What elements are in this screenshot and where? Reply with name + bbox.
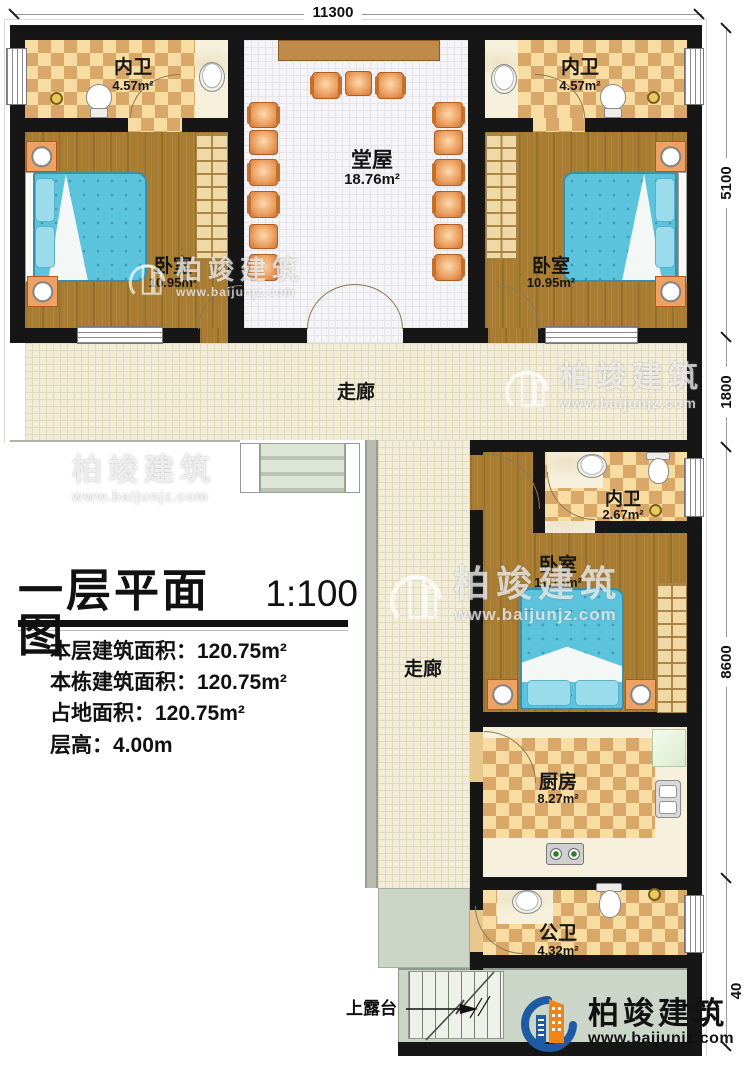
corridor-rail <box>365 440 378 888</box>
stat-value: 120.75m² <box>155 702 245 725</box>
bath4-drain <box>648 888 661 901</box>
roof-ledge-left <box>4 19 5 443</box>
bed1-nightstand <box>27 276 58 307</box>
hall-chair <box>434 102 463 128</box>
terrace-upper-landing <box>378 888 470 968</box>
corridor-v-label: 走廊 <box>392 660 454 680</box>
stat-building-area: 本栋建筑面积：120.75m² <box>50 672 287 693</box>
bed3-pillow <box>527 680 571 706</box>
hall-door-gap <box>307 328 403 343</box>
bed2-label: 卧室 <box>520 257 582 277</box>
wall-lower-left-vert <box>470 440 483 970</box>
stat-floor-height: 层高：4.00m <box>50 735 173 756</box>
bath3-door-gap <box>545 521 595 533</box>
stat-label: 层高： <box>50 734 113 757</box>
bed2-door-gap <box>488 328 538 343</box>
hall-area: 18.76m² <box>330 172 414 187</box>
bed1-area: 10.95m² <box>138 276 208 289</box>
wall-south-c <box>228 328 307 343</box>
wall-south-b <box>163 328 200 343</box>
entrance-jamb-right <box>345 443 360 493</box>
bed3-area: 11.13m² <box>519 576 597 589</box>
hall-label: 堂屋 <box>330 150 414 172</box>
hall-chair <box>249 191 278 218</box>
bath3-area: 2.67m² <box>590 508 656 521</box>
hall-chair <box>249 159 278 186</box>
corridor-h-label: 走廊 <box>325 383 387 403</box>
bed1-pillow <box>35 178 55 222</box>
entrance-jamb-left <box>240 443 260 493</box>
dim-right-1800: 1800 <box>718 367 736 417</box>
kitchen-door-gap <box>470 732 483 782</box>
bed3-label: 卧室 <box>527 556 589 576</box>
bed2-headboard <box>678 172 687 282</box>
kitchen-counter <box>652 729 686 767</box>
corridor-edge-line <box>10 440 240 442</box>
wall-south-f <box>638 328 702 343</box>
wall-mid-right-vert <box>468 25 485 328</box>
bath2-door-gap <box>533 118 585 132</box>
wall-mid-left-vert <box>228 25 244 328</box>
bath1-door-gap <box>128 118 182 132</box>
bed2-nightstand <box>655 141 686 172</box>
stat-value: 4.00m <box>113 734 173 757</box>
bed1-door-gap <box>200 328 230 343</box>
hall-chair <box>434 191 463 218</box>
terrace-label: 上露台 <box>346 994 406 1019</box>
bed3-nightstand <box>487 679 518 710</box>
watermark: 柏竣建筑 www.baijunjz.com <box>12 452 216 510</box>
stat-value: 120.75m² <box>197 640 287 663</box>
hall-sideboard <box>278 40 440 61</box>
bed3-blanket-fold <box>522 647 622 682</box>
bath2-drain <box>647 91 660 104</box>
company-logo-icon <box>518 993 578 1053</box>
bath1-drain <box>50 92 63 105</box>
kitchen-area: 8.27m² <box>523 792 593 805</box>
kitchen-stove <box>546 843 584 865</box>
bath2-area: 4.57m² <box>550 79 610 92</box>
roof-ledge-right <box>706 19 707 1056</box>
hall-table <box>434 224 463 249</box>
bath4-area: 4.32m² <box>523 944 593 957</box>
bed2-area: 10.95m² <box>516 276 586 289</box>
bed1-window <box>77 326 163 344</box>
bed3-pillow <box>575 680 619 706</box>
bath2-sink <box>491 64 517 94</box>
dim-right-8600: 8600 <box>718 637 736 687</box>
bath2-window <box>684 48 704 105</box>
bed2-nightstand <box>655 276 686 307</box>
bed3-nightstand <box>625 679 656 710</box>
dim-right-5100: 5100 <box>718 158 736 208</box>
bath1-window <box>6 48 27 105</box>
wall-bed3-kitchen <box>470 712 702 727</box>
hall-chair <box>434 254 463 281</box>
bath2-label: 内卫 <box>550 58 610 78</box>
hall-table <box>249 130 278 155</box>
bed1-label: 卧室 <box>142 257 204 277</box>
stat-label: 本栋建筑面积： <box>50 671 197 694</box>
wall-bath1-bottom-a <box>10 118 128 132</box>
stat-ground-area: 占地面积：120.75m² <box>50 703 245 724</box>
floor-plan-page: 内卫 4.57m² 内卫 4.57m² 堂屋 18.76m² 卧室 10.95m… <box>0 0 750 1066</box>
wall-bath2-bottom-b <box>585 118 702 132</box>
wall-bath1-bottom-b <box>182 118 228 132</box>
bed3-wardrobe <box>657 583 687 713</box>
entrance-steps <box>260 443 345 493</box>
hall-table <box>249 224 278 249</box>
bath3-toilet <box>648 458 669 484</box>
bed2-window <box>545 326 638 344</box>
dim-top-label: 11300 <box>304 4 362 22</box>
hall-chair <box>249 254 278 281</box>
bed1-nightstand <box>26 141 57 172</box>
kitchen-sink <box>655 780 681 818</box>
hall-table <box>345 71 372 96</box>
bath1-toilet-tank <box>90 108 108 118</box>
stat-floor-area: 本层建筑面积：120.75m² <box>50 641 287 662</box>
hall-chair <box>312 72 340 99</box>
hall-chair <box>377 72 404 99</box>
terrace-arrow <box>404 996 499 1022</box>
bath3-window <box>684 458 704 517</box>
plan-scale: 1:100 <box>265 575 358 612</box>
stat-value: 120.75m² <box>197 671 287 694</box>
wall-south-d <box>403 328 488 343</box>
bed2-wardrobe <box>486 133 517 259</box>
bath1-area: 4.57m² <box>103 79 163 92</box>
bath4-label: 公卫 <box>527 924 589 944</box>
watermark-logo-icon <box>12 452 64 510</box>
bed1-pillow <box>35 226 55 268</box>
company-logo-name: 柏竣建筑 <box>588 998 734 1029</box>
hall-chair <box>434 159 463 186</box>
company-logo-url: www.baijunjz.com <box>588 1029 734 1049</box>
wall-bath2-bottom-a <box>485 118 533 132</box>
stat-label: 占地面积： <box>50 702 155 725</box>
bath4-toilet <box>599 890 621 918</box>
company-logo: 柏竣建筑 www.baijunjz.com <box>518 993 734 1053</box>
bath4-window <box>684 895 704 953</box>
hall-table <box>434 130 463 155</box>
bed3-door-gap <box>470 455 483 510</box>
bed2-pillow <box>655 226 675 268</box>
wall-lower-block-top <box>470 440 702 452</box>
bath1-label: 内卫 <box>103 58 163 78</box>
wall-kitchen-bath4 <box>470 877 702 890</box>
wall-top <box>10 25 702 40</box>
bed1-wardrobe <box>196 133 228 259</box>
bath1-sink <box>199 62 225 92</box>
kitchen-label: 厨房 <box>527 773 589 793</box>
bed2-pillow <box>655 178 675 222</box>
bath2-toilet-tank <box>604 108 622 118</box>
wall-south-e <box>538 328 545 343</box>
stat-label: 本层建筑面积： <box>50 640 197 663</box>
hall-chair <box>249 102 278 128</box>
wall-south-a <box>10 328 77 343</box>
